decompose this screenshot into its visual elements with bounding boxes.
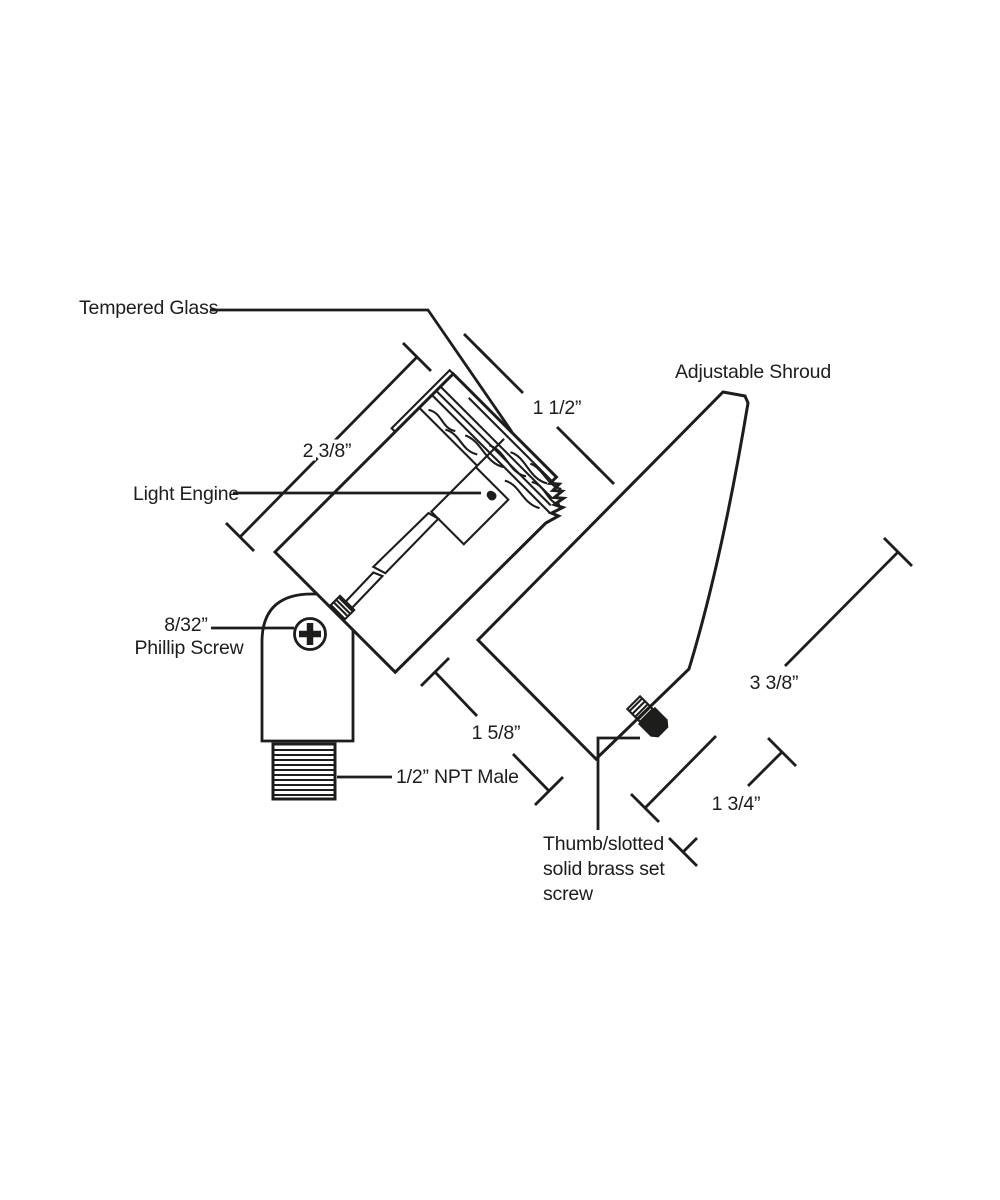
label-tempered-glass: Tempered Glass [79,297,219,319]
npt-thread-stub [273,744,335,799]
phillips-cross [299,623,321,645]
label-set-screw-line3: screw [543,883,594,905]
dimension-text-shroud-mouth: 1 3/4” [712,793,761,815]
phillips-screw-icon [295,619,326,650]
dimension-text-body-length: 2 3/8” [303,440,352,462]
light-engine-leader-dot [488,492,497,501]
label-npt-male: 1/2” NPT Male [396,766,519,788]
dimension-text-shroud-length: 3 3/8” [750,672,799,694]
label-phillip-screw: Phillip Screw [134,637,244,659]
label-light-engine: Light Engine [133,483,239,505]
diagram-page: Tempered Glass Adjustable Shroud Light E… [0,0,1000,1200]
dimension-text-bezel-length: 1 1/2” [533,397,582,419]
label-adjustable-shroud: Adjustable Shroud [675,361,831,383]
label-set-screw-line1: Thumb/slotted [543,833,664,855]
label-phillip-screw-size: 8/32” [164,614,207,636]
label-set-screw-line2: solid brass set [543,858,665,880]
dimension-text-knuckle-height: 1 5/8” [472,722,521,744]
fixture-dimension-diagram: Tempered Glass Adjustable Shroud Light E… [0,0,1000,1200]
